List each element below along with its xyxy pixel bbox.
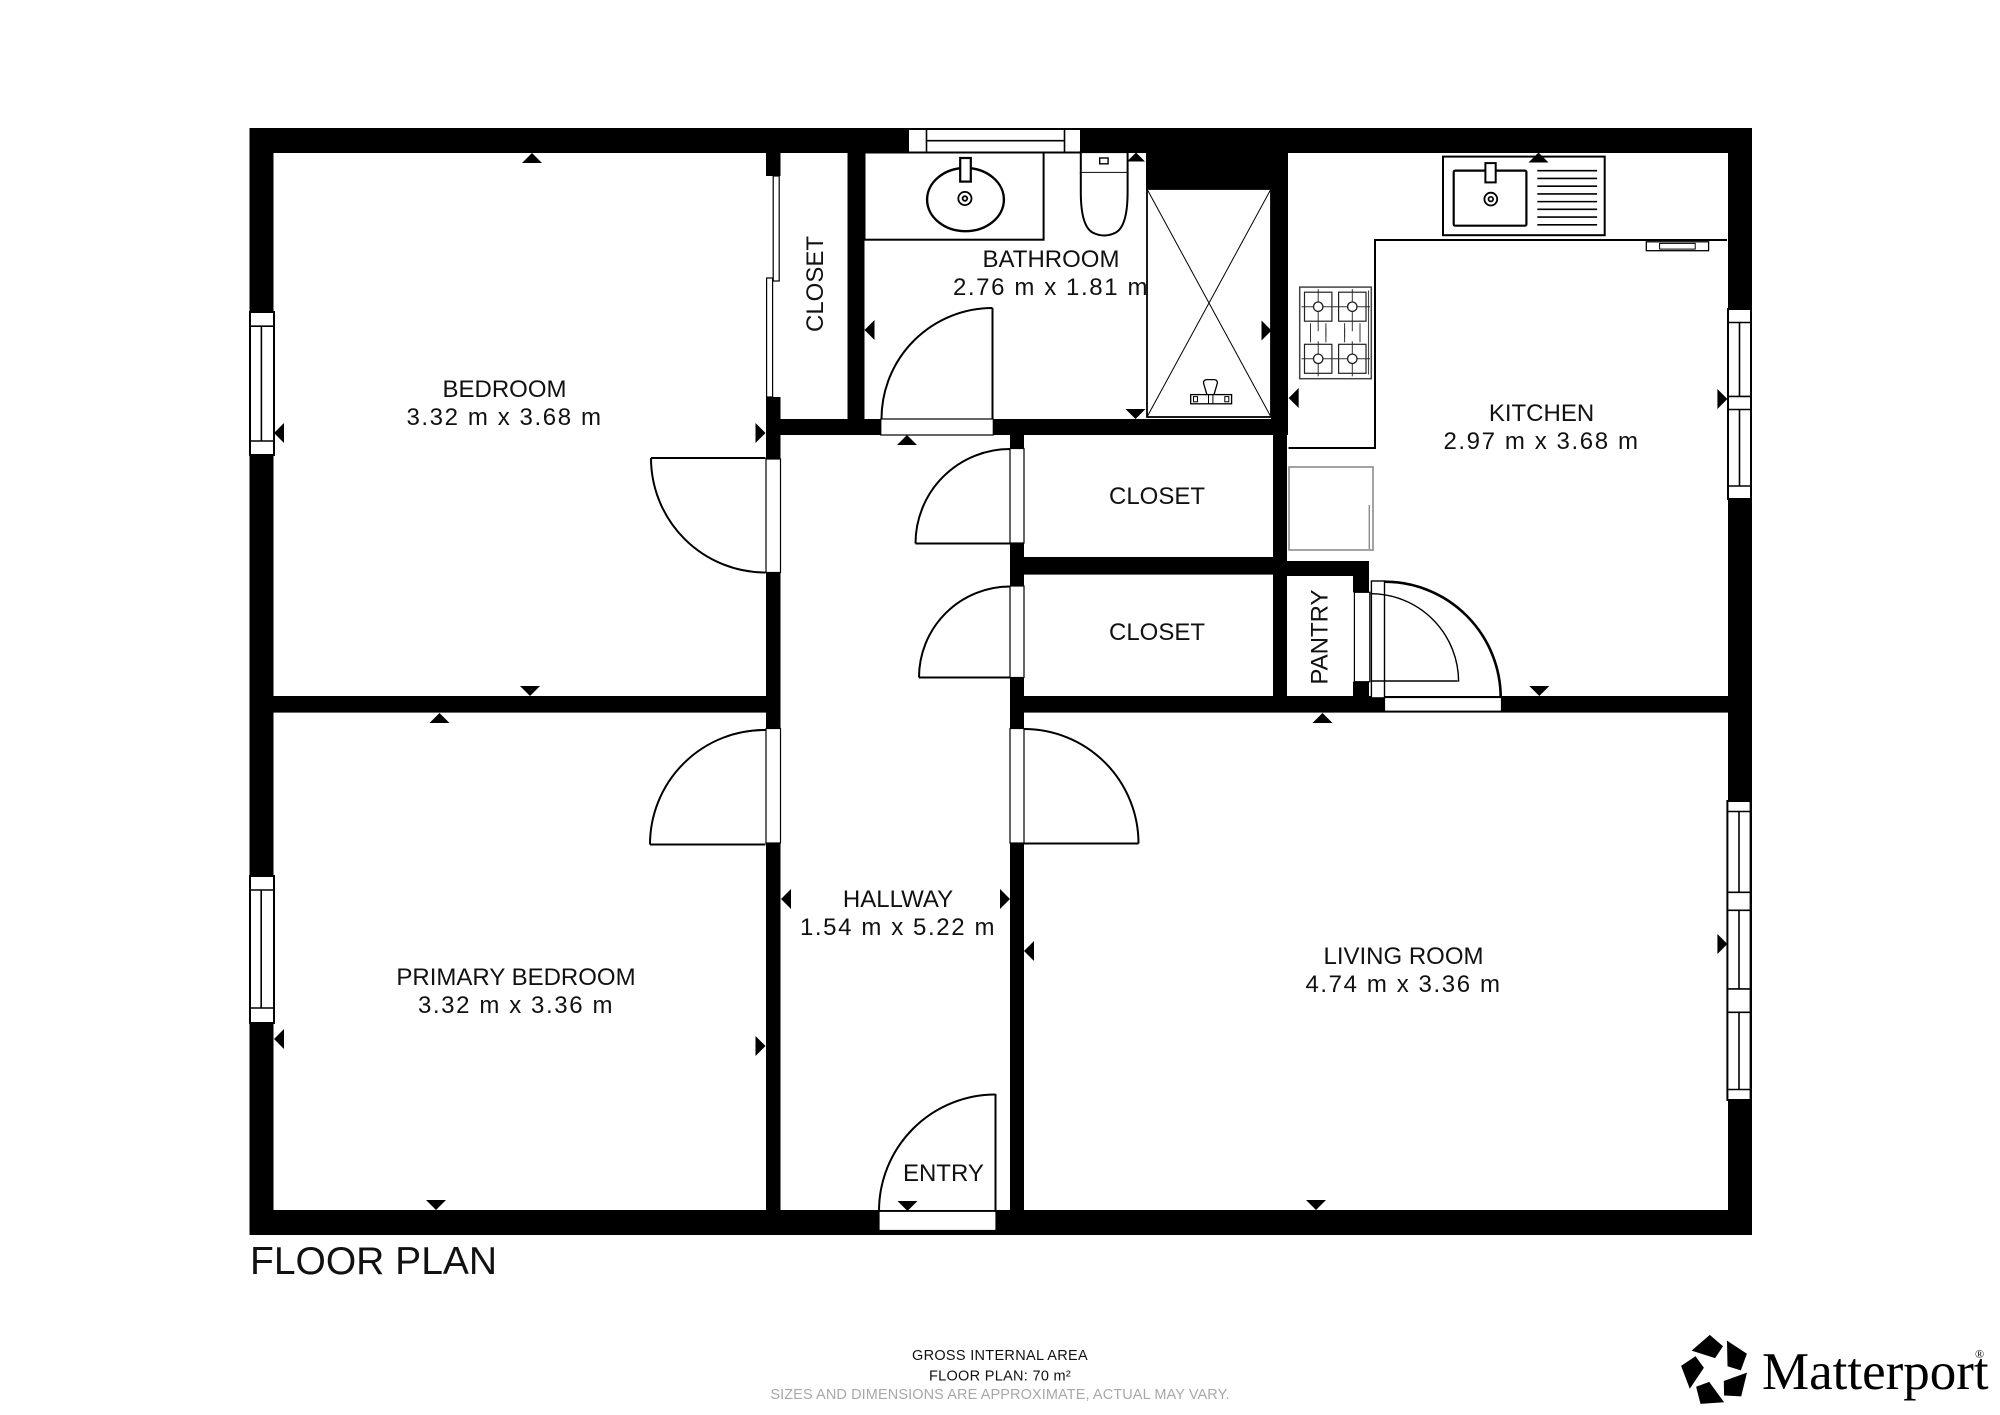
svg-text:BEDROOM: BEDROOM bbox=[442, 376, 566, 403]
svg-text:PANTRY: PANTRY bbox=[1307, 589, 1334, 684]
svg-text:ENTRY: ENTRY bbox=[903, 1160, 984, 1187]
svg-text:HALLWAY: HALLWAY bbox=[843, 886, 953, 913]
svg-text:FLOOR PLAN: 70 m²: FLOOR PLAN: 70 m² bbox=[929, 1369, 1071, 1385]
svg-text:PRIMARY BEDROOM: PRIMARY BEDROOM bbox=[396, 964, 635, 991]
svg-text:Matterport: Matterport bbox=[1762, 1343, 1989, 1401]
svg-text:®: ® bbox=[1975, 1347, 1984, 1361]
svg-text:3.32 m x 3.68 m: 3.32 m x 3.68 m bbox=[406, 404, 602, 431]
svg-text:CLOSET: CLOSET bbox=[1109, 619, 1205, 646]
svg-text:CLOSET: CLOSET bbox=[802, 236, 829, 332]
svg-text:KITCHEN: KITCHEN bbox=[1489, 400, 1594, 427]
svg-text:2.97 m x 3.68 m: 2.97 m x 3.68 m bbox=[1443, 428, 1639, 455]
svg-text:CLOSET: CLOSET bbox=[1109, 483, 1205, 510]
svg-text:1.54 m x 5.22 m: 1.54 m x 5.22 m bbox=[800, 914, 996, 941]
svg-text:LIVING ROOM: LIVING ROOM bbox=[1323, 943, 1483, 970]
svg-text:FLOOR PLAN: FLOOR PLAN bbox=[250, 1240, 497, 1283]
svg-text:3.32 m x 3.36 m: 3.32 m x 3.36 m bbox=[418, 992, 614, 1019]
svg-text:GROSS INTERNAL AREA: GROSS INTERNAL AREA bbox=[912, 1348, 1088, 1364]
svg-text:BATHROOM: BATHROOM bbox=[983, 246, 1120, 273]
svg-text:4.74 m x 3.36 m: 4.74 m x 3.36 m bbox=[1305, 971, 1501, 998]
svg-text:2.76 m x 1.81 m: 2.76 m x 1.81 m bbox=[953, 274, 1149, 301]
svg-text:SIZES AND DIMENSIONS ARE APPRO: SIZES AND DIMENSIONS ARE APPROXIMATE, AC… bbox=[770, 1387, 1229, 1403]
